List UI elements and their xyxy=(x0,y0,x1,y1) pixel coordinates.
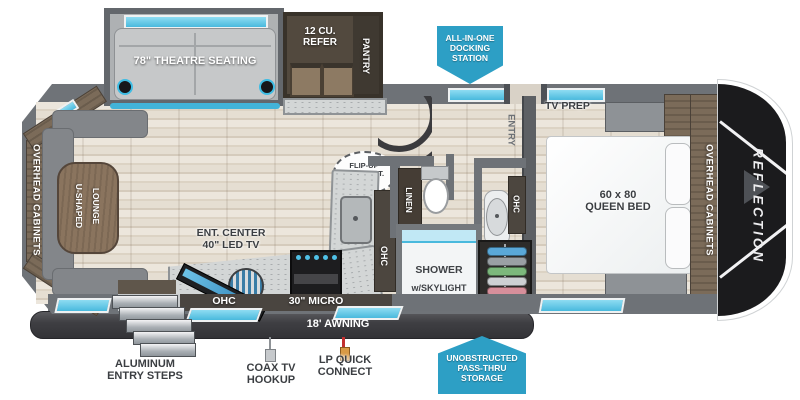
lp-line2: CONNECT xyxy=(318,366,372,378)
passthru-line2: PASS-THRU xyxy=(458,363,507,373)
bottom-wall xyxy=(392,294,532,311)
u-lounge-label-line1: U-SHAPED xyxy=(74,184,84,228)
door-jamb xyxy=(504,84,510,104)
queen-bed-label: 60 x 80 QUEEN BED xyxy=(563,189,673,214)
burner-knob-icon xyxy=(323,255,328,260)
steps-line2: ENTRY STEPS xyxy=(107,370,183,382)
clothes-hanger-icon xyxy=(487,277,527,286)
kitchen-ohc-label: OHC xyxy=(379,246,389,266)
pass-thru-storage-badge: UNOBSTRUCTED PASS-THRU STORAGE xyxy=(438,336,526,394)
ent-center-label: ENT. CENTER 40" LED TV xyxy=(168,228,294,252)
front-cap-outer: REFLECTION xyxy=(718,80,792,320)
slide-led-trim xyxy=(110,103,280,109)
theatre-slideout: 78" THEATRE SEATING xyxy=(104,8,284,106)
window xyxy=(124,15,268,29)
kitchen-sink xyxy=(340,196,372,244)
interior-entry-step xyxy=(118,280,176,294)
bedroom-steps xyxy=(378,96,432,162)
clothes-hanger-icon xyxy=(487,267,527,276)
steps-line1: ALUMINUM xyxy=(115,358,175,370)
burner-knob-icon xyxy=(296,255,301,260)
bath-wall xyxy=(368,156,434,166)
refer-line1: 12 CU. xyxy=(304,26,335,37)
burner-knob-icon xyxy=(332,255,337,260)
drawer xyxy=(290,63,322,97)
bed-line1: 60 x 80 xyxy=(600,189,637,201)
refer-line2: REFER xyxy=(303,37,337,48)
coax-hookup-icon xyxy=(265,349,276,362)
refrigerator-label: 12 CU. REFER xyxy=(289,26,351,48)
queen-bed: 60 x 80 QUEEN BED xyxy=(546,136,694,274)
ent-line2: 40" LED TV xyxy=(203,239,260,251)
awning-label: 18' AWNING xyxy=(300,318,376,330)
ent-line1: ENT. CENTER xyxy=(197,227,266,239)
clothes-hanger-icon xyxy=(487,247,527,256)
docking-line3: STATION xyxy=(452,53,488,63)
passthru-line1: UNOBSTRUCTED xyxy=(446,353,517,363)
burner-knob-icon xyxy=(305,255,310,260)
skylight xyxy=(402,230,476,243)
theatre-sofa: 78" THEATRE SEATING xyxy=(114,28,276,100)
coax-line1: COAX TV xyxy=(247,362,296,374)
cup-holder-icon xyxy=(117,79,133,95)
toilet xyxy=(423,178,449,214)
nightstand xyxy=(605,102,665,132)
shower-line2: w/SKYLIGHT xyxy=(411,283,466,293)
coax-line2: HOOKUP xyxy=(247,374,295,386)
sink-drain-icon xyxy=(495,214,499,218)
window xyxy=(448,88,506,102)
window xyxy=(539,298,626,313)
entry-label: ENTRY xyxy=(506,114,517,146)
bed-line2: QUEEN BED xyxy=(585,201,650,213)
docking-station-badge: ALL-IN-ONE DOCKING STATION xyxy=(437,26,503,84)
overhead-cabinets-right-label: OVERHEAD CABINETS xyxy=(704,144,715,256)
coax-label: COAX TV HOOKUP xyxy=(230,362,312,387)
vanity-sink xyxy=(486,198,508,236)
docking-line2: DOCKING xyxy=(450,43,490,53)
entry-steps-label: ALUMINUM ENTRY STEPS xyxy=(90,358,200,383)
chassis-bar xyxy=(30,311,534,339)
pillow xyxy=(665,207,691,269)
theatre-seating-label: 78" THEATRE SEATING xyxy=(115,55,275,67)
u-lounge-table xyxy=(57,162,119,254)
sink-drain-icon xyxy=(353,216,358,221)
u-lounge-label-line2: LOUNGE xyxy=(91,188,101,224)
ohc-bottom-label: OHC xyxy=(192,296,256,308)
window xyxy=(54,298,111,313)
brand-label: REFLECTION xyxy=(751,148,766,264)
pantry-label: PANTRY xyxy=(361,38,371,74)
rv-floor-plan: 78" THEATRE SEATING 12 CU. REFER PANTRY … xyxy=(0,0,800,400)
bath-ohc-label: OHC xyxy=(512,195,521,213)
tv-prep-label: TV PREP xyxy=(545,100,590,112)
lp-line1: LP QUICK xyxy=(319,354,371,366)
burner-knob-icon xyxy=(314,255,319,260)
drawer xyxy=(322,63,354,97)
clothes-hanger-icon xyxy=(487,257,527,266)
refer-pantry-cabinet: 12 CU. REFER PANTRY xyxy=(283,12,383,98)
oven-handle xyxy=(294,274,338,284)
linen-label: LINEN xyxy=(404,187,414,213)
window xyxy=(185,308,262,322)
overhead-cabinets-left-label: OVERHEAD CABINETS xyxy=(31,144,42,256)
shower-line1: SHOWER xyxy=(415,264,462,276)
lp-connect-label: LP QUICK CONNECT xyxy=(303,354,387,379)
entry-step-tread xyxy=(140,343,196,357)
counter-strip xyxy=(283,98,387,115)
shower-label: SHOWER w/SKYLIGHT xyxy=(402,260,476,296)
docking-line1: ALL-IN-ONE xyxy=(445,33,494,43)
passthru-line3: STORAGE xyxy=(461,373,503,383)
cup-holder-icon xyxy=(259,79,275,95)
